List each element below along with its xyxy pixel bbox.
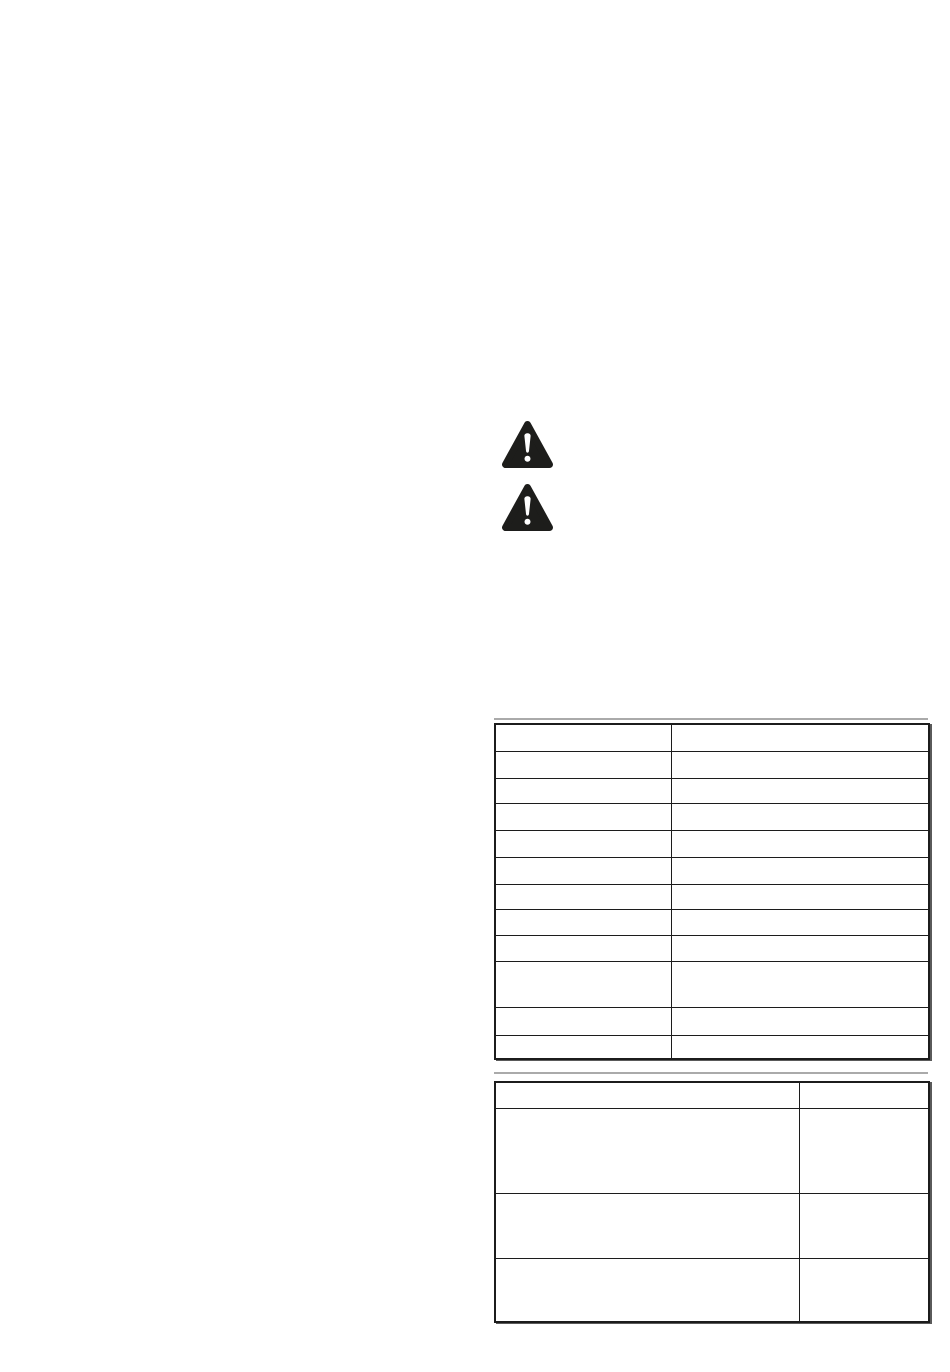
table-cell: [495, 724, 671, 751]
lower-table-container: [494, 1081, 930, 1323]
table-cell: [495, 778, 671, 803]
table-cell: [671, 935, 929, 961]
table-cell: [671, 857, 929, 884]
table-cell: [799, 1193, 929, 1258]
table-row: [495, 724, 929, 751]
table-cell: [495, 830, 671, 857]
table-cell: [671, 1007, 929, 1035]
scan-artifact-line: [494, 718, 928, 720]
table-cell: [495, 1108, 799, 1193]
upper-table-container: [494, 723, 930, 1060]
table-cell: [799, 1258, 929, 1322]
table-row: [495, 1035, 929, 1059]
table-cell: [495, 1193, 799, 1258]
table-cell: [671, 803, 929, 830]
table-cell: [495, 935, 671, 961]
table-row: [495, 1007, 929, 1035]
table-row: [495, 778, 929, 803]
table-row: [495, 884, 929, 909]
table-row: [495, 935, 929, 961]
table-row: [495, 909, 929, 935]
table-row: [495, 1193, 929, 1258]
table-cell: [495, 1258, 799, 1322]
table-cell: [671, 1035, 929, 1059]
upper-table-body: [495, 724, 929, 1059]
table-row: [495, 751, 929, 778]
document-page: [0, 0, 950, 1372]
table-cell: [495, 1082, 799, 1108]
warning-triangle-icon: [501, 420, 554, 469]
table-cell: [495, 961, 671, 1007]
table-cell: [671, 830, 929, 857]
scan-artifact-line: [494, 1072, 928, 1074]
table-row: [495, 857, 929, 884]
table-cell: [495, 909, 671, 935]
warning-triangle-icon: [501, 483, 554, 532]
lower-table-body: [495, 1082, 929, 1322]
table-cell: [671, 778, 929, 803]
table-row: [495, 961, 929, 1007]
table-cell: [671, 884, 929, 909]
table-cell: [671, 751, 929, 778]
table-row: [495, 1108, 929, 1193]
table-cell: [799, 1108, 929, 1193]
table-cell: [495, 857, 671, 884]
table-cell: [671, 961, 929, 1007]
table-cell: [495, 884, 671, 909]
table-cell: [495, 1007, 671, 1035]
table-cell: [495, 751, 671, 778]
table-cell: [799, 1082, 929, 1108]
table-row: [495, 1258, 929, 1322]
table-row: [495, 830, 929, 857]
table-cell: [671, 909, 929, 935]
table-cell: [495, 1035, 671, 1059]
table-row: [495, 803, 929, 830]
lower-data-table: [494, 1081, 930, 1323]
table-cell: [671, 724, 929, 751]
table-cell: [495, 803, 671, 830]
table-row: [495, 1082, 929, 1108]
upper-data-table: [494, 723, 930, 1060]
